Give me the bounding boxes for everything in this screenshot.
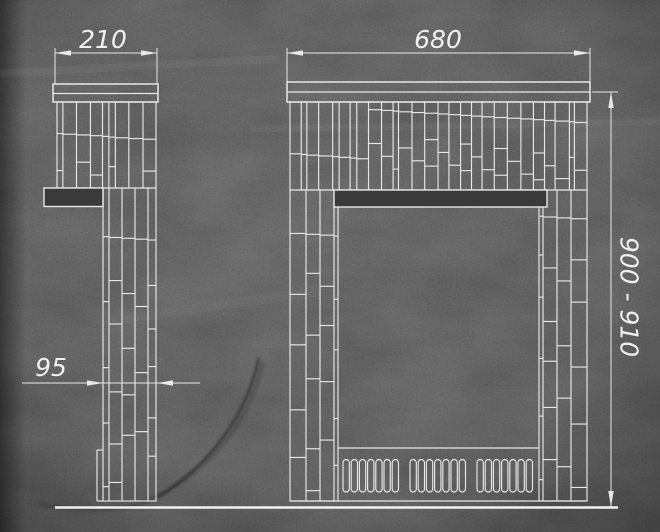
fireplace-portal-drawing: 210 95 bbox=[0, 0, 660, 532]
dimension-label-pier-depth: 95 bbox=[35, 353, 67, 382]
ledge bbox=[44, 188, 103, 207]
background-texture bbox=[0, 0, 660, 532]
dimension-label-side-width: 210 bbox=[79, 25, 127, 54]
lintel-bar bbox=[334, 190, 547, 207]
dimension-label-front-width: 680 bbox=[414, 25, 462, 54]
dimension-label-height: 900 - 910 bbox=[614, 237, 643, 357]
drawing-canvas: 210 95 bbox=[0, 0, 660, 532]
